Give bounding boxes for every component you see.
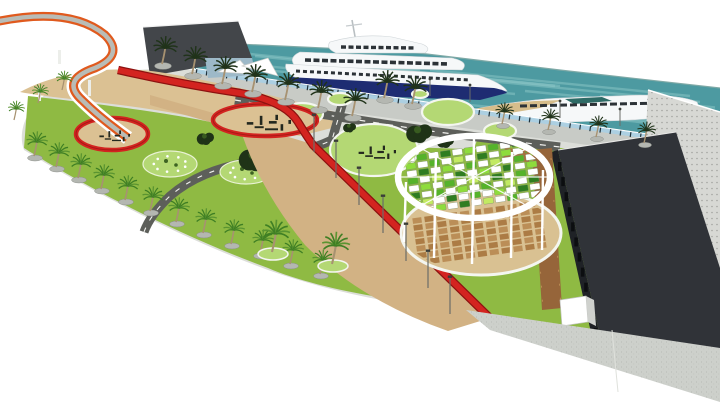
- lamp-head: [381, 195, 385, 197]
- yacht-radar-bar: [346, 24, 362, 26]
- flower-dot: [184, 165, 187, 168]
- kiosk-box: [560, 296, 596, 326]
- canopy-panel: [446, 195, 457, 202]
- shrub: [164, 159, 168, 163]
- palm-tree: [8, 101, 25, 120]
- canopy-panel: [452, 148, 463, 155]
- canopy-panel: [519, 192, 530, 199]
- canopy-panel: [432, 181, 443, 188]
- flower-dot: [229, 171, 232, 174]
- lamp-head: [429, 78, 432, 81]
- lamp-head: [357, 167, 361, 169]
- window-slit: [584, 283, 588, 292]
- canopy-panel: [422, 191, 433, 198]
- canopy-panel: [408, 177, 419, 184]
- palm-pad: [314, 273, 329, 279]
- canopy-panel: [489, 151, 500, 158]
- flower-dot: [166, 170, 169, 173]
- canopy-panel: [517, 177, 528, 184]
- window-slit: [574, 237, 578, 246]
- equipment: [374, 157, 385, 159]
- equipment: [119, 130, 121, 134]
- canopy-panel: [444, 180, 455, 187]
- ramp-column: [88, 80, 91, 96]
- flower-dot: [184, 160, 187, 163]
- equipment: [377, 151, 384, 153]
- canopy-panel: [514, 155, 525, 162]
- lamp-head: [469, 84, 472, 87]
- equipment: [105, 138, 111, 139]
- equipment: [359, 152, 365, 154]
- equipment: [115, 135, 120, 137]
- canopy-panel: [417, 161, 428, 168]
- flower-dot: [156, 168, 159, 171]
- window-slit: [571, 222, 575, 231]
- canopy-panel: [505, 179, 516, 186]
- equipment: [260, 116, 263, 125]
- palm-frond: [9, 109, 16, 111]
- lamp-head: [559, 100, 562, 103]
- lamp-head: [426, 250, 430, 252]
- shrub: [174, 163, 178, 167]
- equipment: [112, 140, 121, 141]
- palm-pad: [95, 188, 110, 194]
- canopy-panel: [493, 181, 504, 188]
- window-slit: [561, 177, 565, 186]
- equipment: [265, 128, 278, 130]
- window-slit: [565, 192, 569, 201]
- window-slit: [581, 268, 585, 277]
- flower-dot: [234, 176, 237, 179]
- equipment: [99, 135, 104, 137]
- lamp-head: [619, 108, 622, 111]
- equipment: [383, 146, 385, 150]
- lamp-head: [448, 276, 452, 278]
- canopy-panel: [518, 185, 529, 192]
- equipment: [247, 122, 254, 125]
- equipment: [123, 137, 125, 142]
- marina-park-render: [0, 0, 720, 405]
- equipment: [255, 126, 264, 128]
- palm-pad: [639, 142, 652, 147]
- canopy-panel: [527, 168, 538, 175]
- flower-dot: [166, 155, 169, 158]
- palm-pad: [225, 243, 240, 249]
- palm-pad: [591, 136, 604, 141]
- canopy-panel: [421, 183, 432, 190]
- flower-dot: [177, 169, 180, 172]
- canopy-panel: [416, 153, 427, 160]
- yacht-top-deck: [328, 36, 427, 53]
- palm-pad: [119, 199, 134, 205]
- flower-dot: [232, 167, 235, 170]
- flower-dot: [153, 163, 156, 166]
- canopy-panel: [409, 185, 420, 192]
- palm-pad: [50, 166, 65, 172]
- equipment: [288, 120, 291, 124]
- canopy-panel: [443, 172, 454, 179]
- render-canvas: [0, 0, 720, 405]
- canopy-panel: [477, 152, 488, 159]
- flower-dot: [254, 177, 257, 180]
- equipment: [387, 154, 389, 160]
- lamp-head: [312, 114, 316, 116]
- equipment: [108, 131, 110, 137]
- canopy-panel: [478, 160, 489, 167]
- equipment: [281, 124, 284, 131]
- canopy-panel: [488, 143, 499, 150]
- canopy-panel: [470, 191, 481, 198]
- palm-pad: [28, 155, 43, 161]
- lamp-head: [334, 140, 338, 142]
- canopy-panel: [495, 195, 506, 202]
- equipment: [370, 146, 372, 154]
- canopy-panel: [458, 193, 469, 200]
- flower-dot: [177, 156, 180, 159]
- canopy-panel: [466, 162, 477, 169]
- canopy-panel: [442, 165, 453, 172]
- canopy-panel: [482, 190, 493, 197]
- canopy-panel: [445, 187, 456, 194]
- canopy-panel: [516, 170, 527, 177]
- equipment: [275, 115, 278, 120]
- canopy-panel: [447, 202, 458, 209]
- lawn-circle: [422, 99, 474, 125]
- canopy-panel: [453, 156, 464, 163]
- palm-pad: [144, 210, 159, 216]
- canopy-panel: [418, 168, 429, 175]
- equipment: [269, 121, 277, 124]
- canopy-panel: [515, 162, 526, 169]
- palm-pad: [284, 263, 299, 269]
- canopy-panel: [459, 200, 470, 207]
- canopy-panel: [440, 150, 451, 157]
- window-slit: [558, 162, 562, 171]
- palm-pad: [497, 123, 510, 128]
- canopy-panel: [530, 183, 541, 190]
- lamp-head: [404, 223, 408, 225]
- ramp-column: [58, 50, 61, 64]
- equipment: [365, 155, 373, 157]
- flower-dot: [243, 178, 246, 181]
- canopy-panel: [457, 186, 468, 193]
- equipment: [394, 150, 396, 153]
- flower-circle: [143, 151, 197, 177]
- canopy-panel: [483, 197, 494, 204]
- equipment: [128, 134, 130, 137]
- shrub: [250, 171, 254, 175]
- canopy-panel: [407, 170, 418, 177]
- canopy-mast: [511, 152, 512, 258]
- window-slit: [568, 207, 572, 216]
- canopy-panel: [526, 161, 537, 168]
- palm-pad: [197, 232, 212, 238]
- flower-dot: [156, 158, 159, 161]
- palm-frond: [16, 109, 24, 111]
- canopy-panel: [490, 158, 501, 165]
- canopy-panel: [501, 149, 512, 156]
- palm-pad: [72, 177, 87, 183]
- lawn-circle: [330, 124, 418, 176]
- palm-trunk: [14, 109, 16, 120]
- window-slit: [578, 253, 582, 262]
- canopy-mast: [542, 170, 543, 250]
- palm-pad: [170, 221, 185, 227]
- canopy-panel: [476, 145, 487, 152]
- palm-pad: [543, 129, 556, 134]
